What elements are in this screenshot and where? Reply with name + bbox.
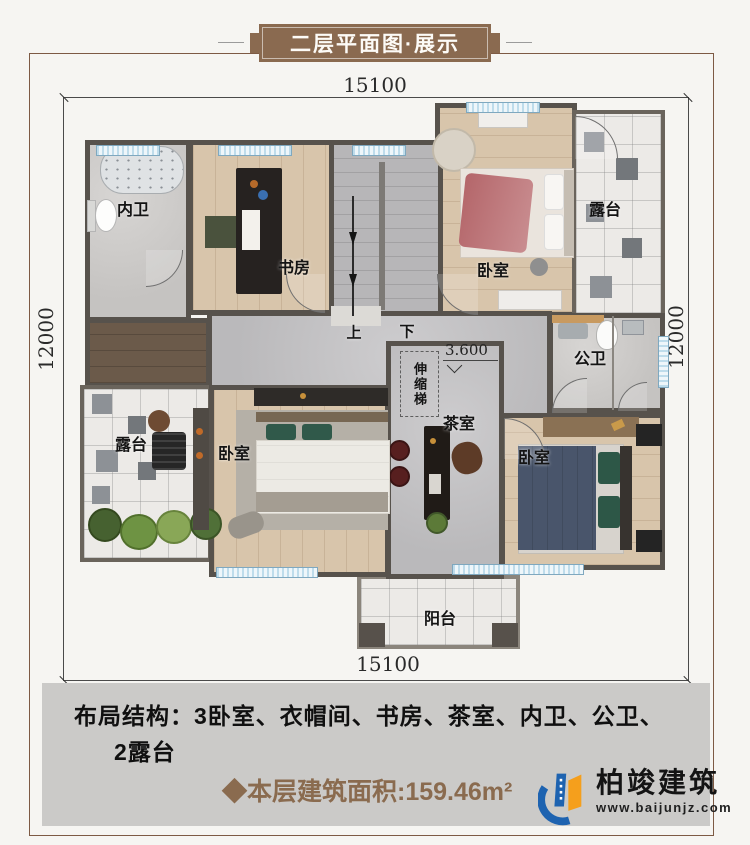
desk-item (258, 190, 268, 200)
wardrobe (543, 417, 639, 437)
window (452, 564, 584, 575)
floorplan-page: 二层平面图·展示 15100 15100 12000 12000 (0, 0, 750, 845)
room-stairwell (329, 140, 443, 330)
shower-head (622, 320, 644, 335)
company-logo: 柏竣建筑 www.baijunjz.com (538, 768, 732, 826)
lounge-chair (152, 432, 186, 470)
nightstand (636, 424, 662, 446)
pouf (530, 258, 548, 276)
study-mat (205, 216, 237, 248)
closet-item (196, 452, 203, 459)
stair-direction-line (352, 196, 354, 316)
desk-item (250, 180, 258, 188)
dim-bottom-label: 15100 (356, 652, 420, 676)
dim-line-left (63, 97, 64, 681)
bed-blanket (458, 173, 533, 254)
tea-table (424, 426, 450, 520)
label-bedroom-top-right: 卧室 (477, 257, 509, 281)
label-terrace-top-right: 露台 (589, 196, 621, 220)
banner-left-dash (218, 42, 244, 43)
company-name: 柏竣建筑 (596, 768, 732, 799)
round-chair (432, 128, 476, 172)
sink (558, 323, 588, 339)
closet-strip (193, 408, 209, 530)
counter-item (300, 393, 306, 399)
company-logo-icon (538, 768, 590, 826)
pillow (544, 214, 564, 250)
company-website: www.baijunjz.com (596, 800, 732, 815)
closet-item (196, 428, 203, 435)
floor-level-value: 3.600 (443, 341, 498, 361)
label-bathroom-public: 公卫 (574, 345, 606, 369)
balcony-pier (492, 623, 518, 647)
headboard (564, 170, 574, 256)
label-study: 书房 (278, 254, 310, 278)
tea-stool (389, 440, 410, 461)
pillow (544, 174, 564, 210)
title-banner-inner-border: 二层平面图·展示 (262, 27, 488, 59)
banner-right-dash (506, 42, 532, 43)
dim-line-bottom (63, 680, 689, 681)
floor-area-text: ◆本层建筑面积:159.46m² (222, 772, 512, 808)
stair-arrowhead (349, 232, 357, 245)
window (216, 567, 318, 578)
tile-accent (622, 238, 642, 258)
plant (88, 508, 122, 542)
retractable-ladder-box: 伸缩梯 (400, 351, 439, 417)
headboard (620, 446, 632, 550)
bath-counter (552, 315, 604, 323)
stair-rail (379, 162, 385, 310)
dim-line-top (63, 97, 689, 98)
label-bath-ensuite: 内卫 (117, 196, 149, 220)
pillow (598, 452, 620, 484)
headboard (256, 412, 388, 422)
label-terrace-bottom-left: 露台 (115, 431, 147, 455)
layout-structure-line2: 2露台 (114, 733, 176, 767)
desk-pad (242, 210, 260, 250)
shower-divider (612, 316, 614, 410)
window (218, 145, 292, 156)
label-bedroom-bottom-left: 卧室 (218, 440, 250, 464)
floor-level-marker: 3.600 (443, 340, 498, 359)
plant-pot (426, 512, 448, 534)
window (352, 145, 406, 156)
title-banner: 二层平面图·展示 (250, 24, 500, 62)
label-bedroom-bottom-right: 卧室 (518, 444, 550, 468)
tea-tray (429, 474, 441, 494)
pillow (598, 496, 620, 528)
stair-arrowhead (349, 274, 357, 287)
pillow (302, 424, 332, 440)
tile-accent (616, 158, 638, 180)
tea-stool (389, 466, 410, 487)
dim-left-label: 12000 (34, 307, 58, 371)
page-title: 二层平面图·展示 (290, 28, 460, 58)
window (96, 145, 160, 156)
toilet (95, 199, 117, 232)
window (658, 336, 669, 388)
plant (156, 510, 192, 544)
nightstand (636, 530, 662, 552)
tile-accent (92, 394, 112, 414)
pillow (266, 424, 296, 440)
pouf (148, 410, 170, 432)
company-logo-text: 柏竣建筑 www.baijunjz.com (596, 768, 732, 815)
dim-line-right (688, 97, 689, 681)
label-stairs-up: 上 (346, 322, 361, 343)
label-tea-room: 茶室 (443, 410, 475, 434)
room-cloakroom (85, 318, 211, 388)
retractable-ladder-label: 伸缩梯 (410, 362, 429, 407)
label-stairs-down: 下 (399, 321, 414, 342)
dim-top-label: 15100 (343, 73, 407, 97)
balcony-pier (359, 623, 385, 647)
layout-structure-line1: 布局结构：3卧室、衣帽间、书房、茶室、内卫、公卫、 (74, 697, 664, 731)
label-balcony: 阳台 (424, 605, 456, 629)
low-cabinet (498, 290, 562, 310)
tile-accent (92, 486, 110, 504)
bed-runner (256, 492, 388, 512)
vanity-counter (254, 388, 388, 406)
window (466, 102, 540, 113)
tile-accent (590, 276, 612, 298)
tea-set (430, 438, 436, 444)
plant (120, 514, 158, 550)
